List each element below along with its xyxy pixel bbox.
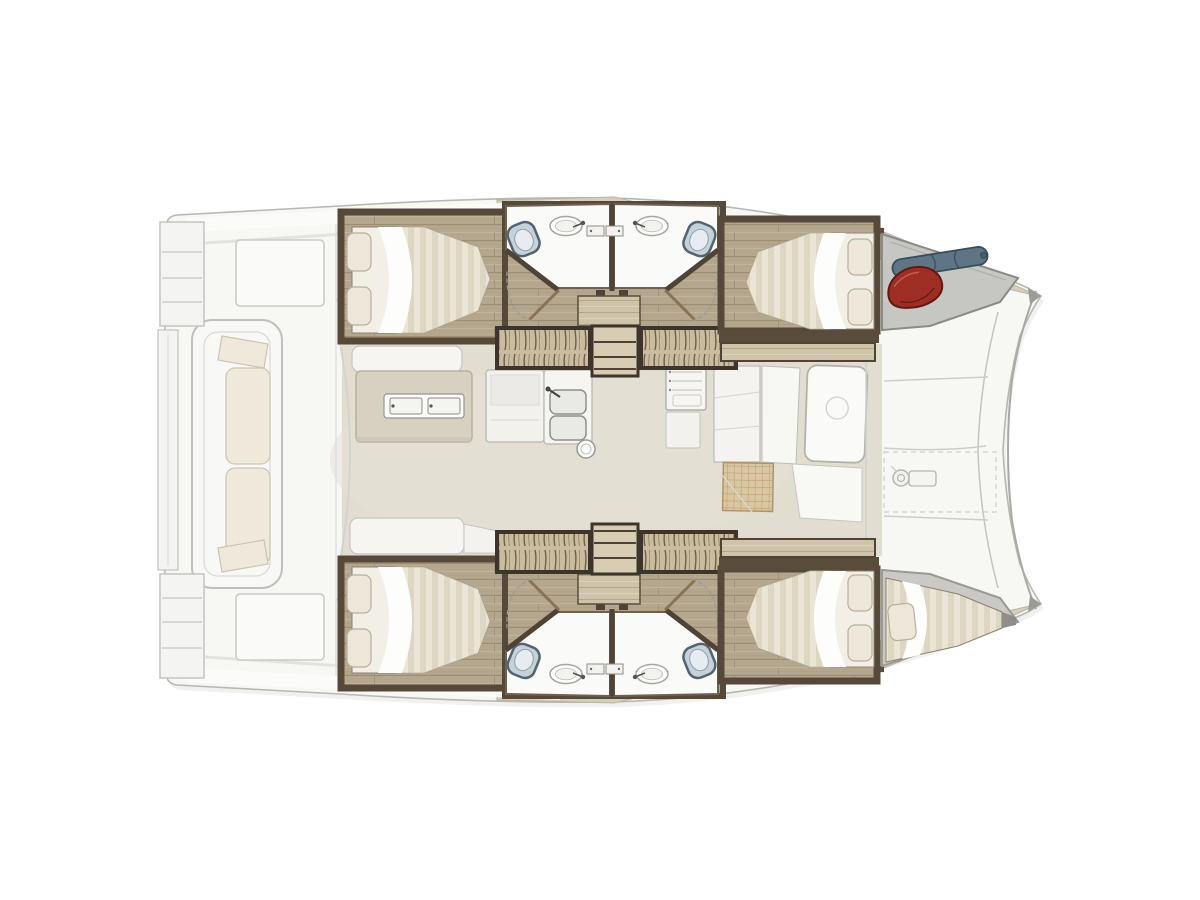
dinette-lower-panel (792, 464, 862, 522)
rattan-mat (723, 463, 774, 512)
catamaran-floor-plan (0, 0, 1200, 900)
dinette-seatback (762, 366, 800, 464)
galley-island (356, 371, 472, 443)
salon-bench-top (352, 346, 462, 372)
floor-plan-svg (0, 0, 1200, 900)
dinette-table (804, 365, 867, 463)
galley-appliance (666, 364, 706, 448)
cockpit-bench (192, 320, 282, 588)
pillow (887, 603, 917, 642)
galley-counter (486, 370, 544, 442)
dinette-bench (714, 366, 760, 462)
corner-round-sink (577, 440, 595, 458)
bench-cushion (226, 368, 270, 464)
salon-sofa (350, 518, 464, 554)
